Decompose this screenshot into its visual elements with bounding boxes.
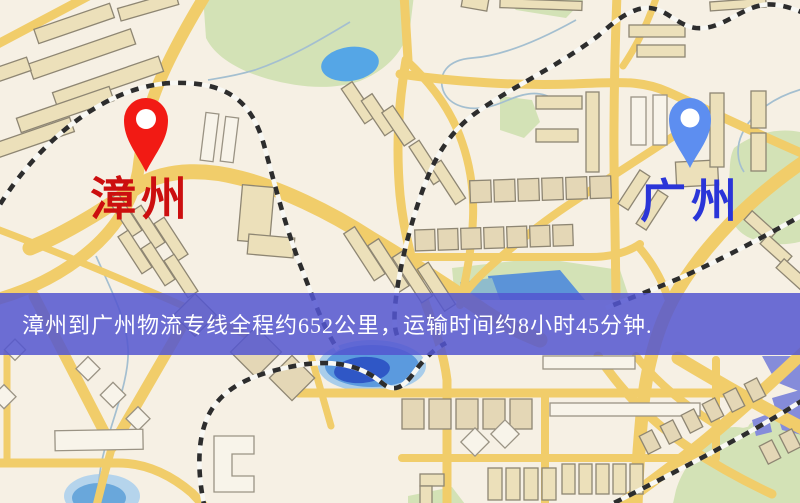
route-info-banner: 漳州到广州物流专线全程约652公里，运输时间约8小时45分钟. (0, 293, 800, 355)
route-info-text: 漳州到广州物流专线全程约652公里，运输时间约8小时45分钟. (0, 308, 653, 340)
pin-hole (136, 109, 156, 129)
origin-city-label: 漳州 (90, 177, 192, 223)
destination-city-label: 广州 (640, 179, 742, 225)
map-screenshot: 漳州 广州 漳州到广州物流专线全程约652公里，运输时间约8小时45分钟. (0, 0, 800, 503)
map-canvas[interactable] (0, 0, 800, 503)
pin-hole (681, 109, 700, 128)
